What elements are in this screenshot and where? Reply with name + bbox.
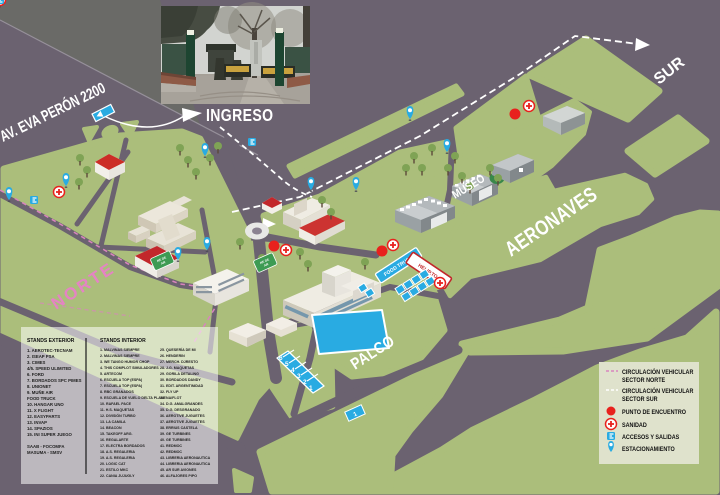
svg-text:18. A.S. REGALERIA: 18. A.S. REGALERIA: [100, 450, 135, 454]
svg-text:ESTACIONAMIENTO: ESTACIONAMIENTO: [622, 447, 675, 453]
svg-text:5. ARTECOM: 5. ARTECOM: [100, 372, 122, 376]
svg-text:16. REGALARTE: 16. REGALARTE: [100, 438, 129, 442]
svg-text:12. EASYPARTS: 12. EASYPARTS: [27, 414, 60, 419]
svg-text:PUNTO DE ENCUENTRO: PUNTO DE ENCUENTRO: [622, 410, 686, 416]
svg-text:7. BORDADOS SPC PIMES: 7. BORDADOS SPC PIMES: [27, 378, 82, 383]
svg-text:17. ELECTRA BORDADOS: 17. ELECTRA BORDADOS: [100, 444, 145, 448]
svg-text:30. BORDADOS DANDY: 30. BORDADOS DANDY: [160, 378, 201, 382]
svg-text:10. RAFAEL PACE: 10. RAFAEL PACE: [100, 402, 132, 406]
svg-text:21. ESTILO MKC: 21. ESTILO MKC: [100, 468, 129, 472]
svg-text:14. SPAZIOS: 14. SPAZIOS: [27, 426, 53, 431]
svg-text:10. HANGAR UNO: 10. HANGAR UNO: [27, 402, 64, 407]
svg-text:32. FLY UP: 32. FLY UP: [160, 390, 179, 394]
svg-text:SANIDAD: SANIDAD: [622, 423, 647, 429]
svg-text:4: 4: [291, 367, 295, 374]
svg-text:CIRCULACIÓN VEHICULAR: CIRCULACIÓN VEHICULAR: [622, 368, 694, 376]
svg-text:3. WE TANGO HUMOR CHOP: 3. WE TANGO HUMOR CHOP: [100, 360, 150, 364]
svg-text:1: 1: [309, 385, 313, 392]
svg-text:15. TAKEOFF ARG.: 15. TAKEOFF ARG.: [100, 432, 133, 436]
svg-text:36. AEROTIVE JUGUETES: 36. AEROTIVE JUGUETES: [160, 414, 205, 418]
svg-text:5: 5: [285, 361, 289, 368]
svg-text:1. AEROTEC-TECNAM: 1. AEROTEC-TECNAM: [27, 348, 73, 353]
svg-text:22. CANIA JUJUGLY: 22. CANIA JUJUGLY: [100, 474, 135, 478]
svg-text:3. CIMES: 3. CIMES: [27, 360, 46, 365]
svg-text:6: 6: [279, 355, 283, 362]
svg-text:39. GE TURBINES: 39. GE TURBINES: [160, 432, 191, 436]
svg-text:6. FORD: 6. FORD: [27, 372, 44, 377]
svg-text:33. NA/FLOT: 33. NA/FLOT: [160, 396, 182, 400]
svg-text:8. UNIONET: 8. UNIONET: [27, 384, 51, 389]
svg-text:3: 3: [297, 373, 301, 380]
svg-text:28. J.G. MAQUETAS: 28. J.G. MAQUETAS: [160, 366, 195, 370]
svg-text:1. MALVINAS SIEMPRE: 1. MALVINAS SIEMPRE: [100, 348, 140, 352]
svg-text:INGRESO: INGRESO: [206, 105, 273, 125]
svg-text:13. INVAP: 13. INVAP: [27, 420, 47, 425]
svg-text:11. H.S. MAQUETAS: 11. H.S. MAQUETAS: [100, 408, 135, 412]
svg-text:29. GORILA DETALING: 29. GORILA DETALING: [160, 372, 199, 376]
svg-text:41. REDMOC: 41. REDMOC: [160, 444, 182, 448]
svg-text:FOOD TRUCK: FOOD TRUCK: [27, 396, 57, 401]
svg-text:7. ESCUELA TOP (ESPA): 7. ESCUELA TOP (ESPA): [100, 384, 143, 388]
svg-text:25. QUESERÍA DE MI: 25. QUESERÍA DE MI: [160, 347, 196, 352]
svg-text:46. ALFAJORES PIPO: 46. ALFAJORES PIPO: [160, 474, 197, 478]
svg-text:15. INI SUPER JUEGO: 15. INI SUPER JUEGO: [27, 432, 73, 437]
svg-text:13. LA CAMILA: 13. LA CAMILA: [100, 420, 126, 424]
svg-text:26. HENDERIN: 26. HENDERIN: [160, 354, 185, 358]
svg-text:12. DIVISIÓN TURBO: 12. DIVISIÓN TURBO: [100, 413, 136, 418]
svg-text:38. ERRIUS CASTELA: 38. ERRIUS CASTELA: [160, 426, 198, 430]
svg-text:44. LIBRERIA AERONAUTICA: 44. LIBRERIA AERONAUTICA: [160, 462, 211, 466]
svg-text:43. LIBRERIA AERONAUTICA: 43. LIBRERIA AERONAUTICA: [160, 456, 211, 460]
svg-text:ACCESOS Y SALIDAS: ACCESOS Y SALIDAS: [622, 435, 679, 441]
svg-text:4. THIS COMPLOT SIMULADORES: 4. THIS COMPLOT SIMULADORES: [100, 366, 159, 370]
svg-text:STANDS EXTERIOR: STANDS EXTERIOR: [27, 338, 75, 344]
svg-text:2. MALVINAS SIEMPRE: 2. MALVINAS SIEMPRE: [100, 354, 140, 358]
svg-text:31. EDIT. ARGENTINIDAD: 31. EDIT. ARGENTINIDAD: [160, 384, 204, 388]
svg-text:MASUMA - SMSV: MASUMA - SMSV: [27, 450, 62, 455]
svg-text:37. AEROTIVE JUGUETES: 37. AEROTIVE JUGUETES: [160, 420, 205, 424]
svg-text:STANDS INTERIOR: STANDS INTERIOR: [100, 338, 146, 344]
svg-text:35. D.G. DESGRANADO: 35. D.G. DESGRANADO: [160, 408, 201, 412]
svg-text:34. D.G. AMALGRANDES: 34. D.G. AMALGRANDES: [160, 402, 203, 406]
svg-text:19. A.S. REGALERIA: 19. A.S. REGALERIA: [100, 456, 135, 460]
svg-text:SECTOR SUR: SECTOR SUR: [622, 397, 658, 403]
svg-text:45. AR SUR AVIONES: 45. AR SUR AVIONES: [160, 468, 197, 472]
svg-text:42. REDMOC: 42. REDMOC: [160, 450, 182, 454]
svg-text:9. MUÑE AIR: 9. MUÑE AIR: [27, 390, 54, 395]
svg-text:14. BEACON: 14. BEACON: [100, 426, 122, 430]
svg-text:SECTOR NORTE: SECTOR NORTE: [622, 378, 665, 384]
svg-text:9. ESCUELA DE VUELO DELTA PLAN: 9. ESCUELA DE VUELO DELTA PLANE: [100, 396, 166, 400]
svg-text:4/5. SPEED ULIMITED: 4/5. SPEED ULIMITED: [27, 366, 71, 371]
svg-text:SAAB - FOCOMFA: SAAB - FOCOMFA: [27, 444, 64, 449]
svg-text:27. MERCH. DJRESTO: 27. MERCH. DJRESTO: [160, 360, 198, 364]
svg-text:6. ESCUELA TOP (ESPA): 6. ESCUELA TOP (ESPA): [100, 378, 143, 382]
svg-text:11. X FLIGHT: 11. X FLIGHT: [27, 408, 54, 413]
svg-text:CIRCULACIÓN VEHICULAR: CIRCULACIÓN VEHICULAR: [622, 387, 694, 395]
svg-text:2. ISEAP PSA: 2. ISEAP PSA: [27, 354, 55, 359]
svg-text:20. LOGIC CAT: 20. LOGIC CAT: [100, 462, 126, 466]
svg-text:2: 2: [303, 379, 307, 386]
svg-text:8. RBC GRANADOS: 8. RBC GRANADOS: [100, 390, 134, 394]
svg-text:40. GE TURBINES: 40. GE TURBINES: [160, 438, 191, 442]
